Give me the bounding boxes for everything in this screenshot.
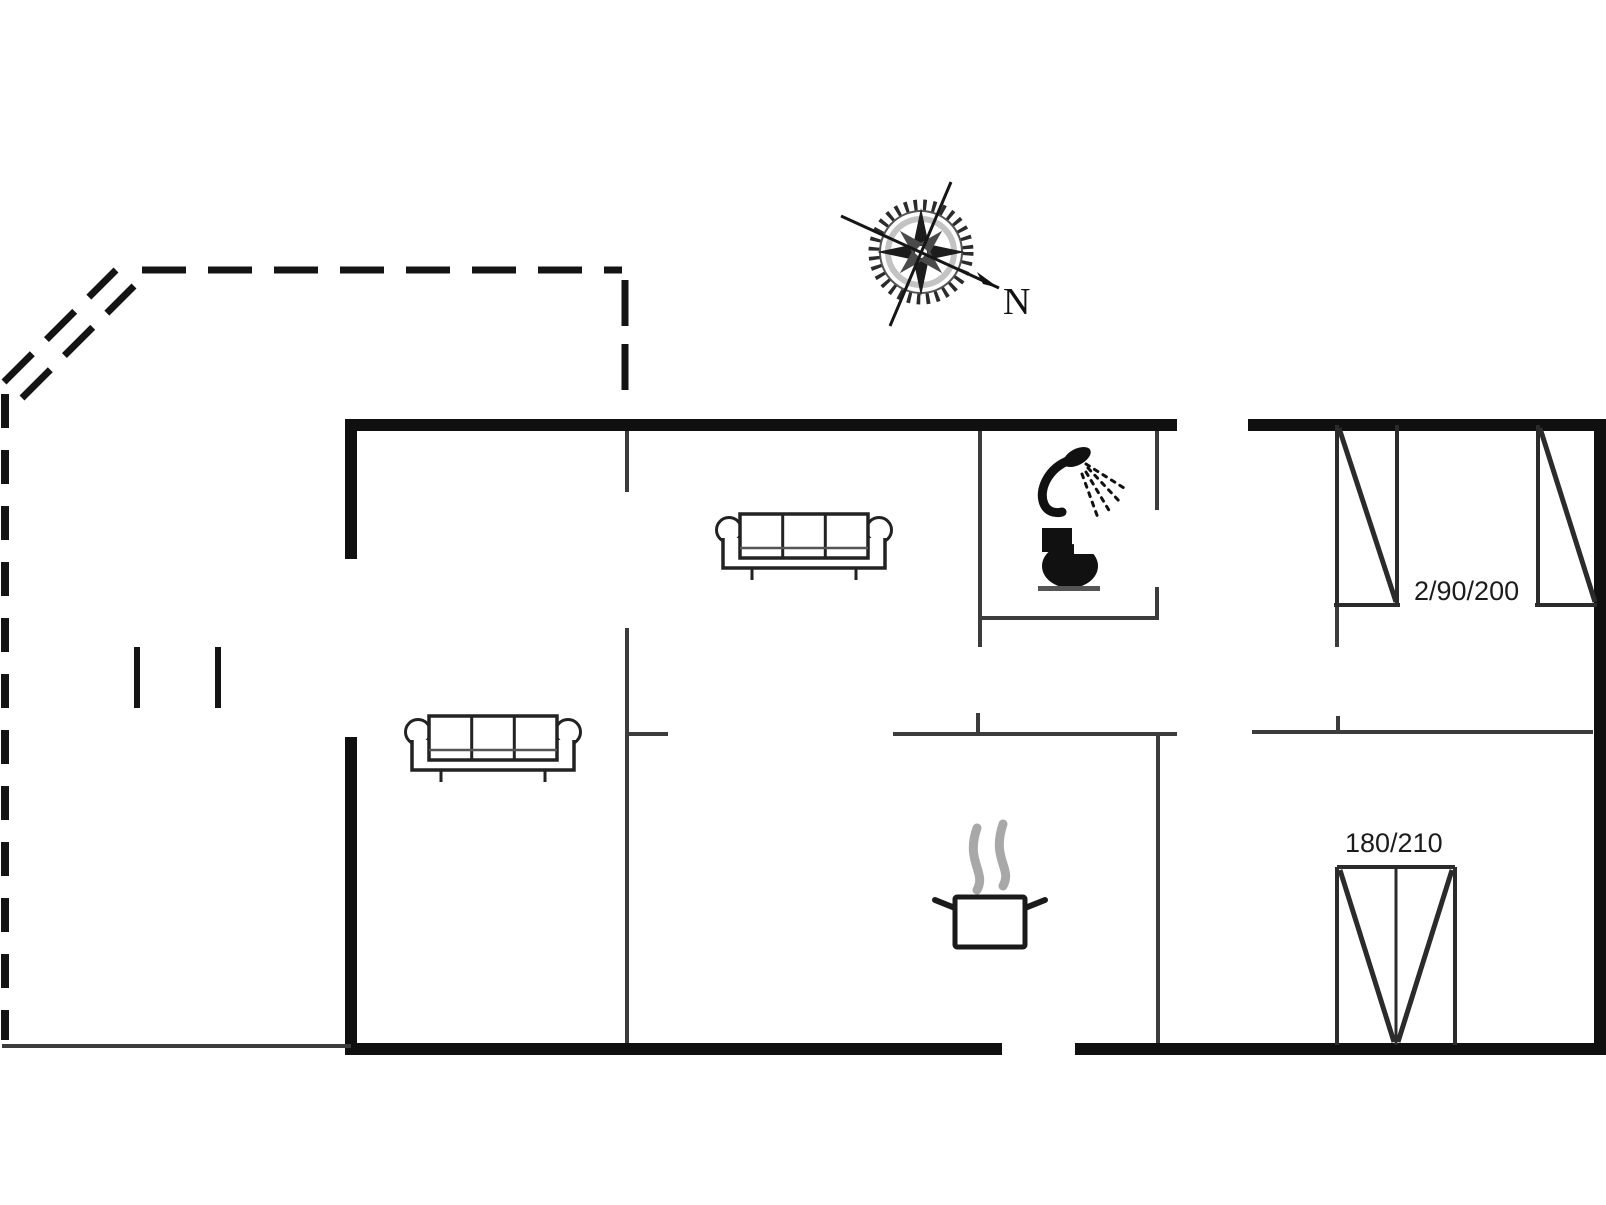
sofa-icon-1 [717, 514, 892, 580]
steam-wisp-1 [973, 828, 979, 890]
wall-left-lower-segment [345, 737, 357, 1055]
terrace-edge-diagonal-outer [4, 270, 116, 382]
floor-plan-drawing [0, 0, 1606, 1205]
single-bed-icon-2 [1535, 425, 1597, 605]
shower-icon [1042, 443, 1124, 518]
wall-bottom-left-segment [345, 1043, 1002, 1055]
steam-wisp-2 [999, 824, 1005, 886]
double-bed-size-label: 180/210 [1345, 830, 1443, 857]
cooking-pot-icon [935, 824, 1045, 947]
compass-rose-icon [841, 182, 999, 326]
wall-left-upper-segment [345, 419, 357, 559]
wall-bottom-right-segment [1075, 1043, 1606, 1055]
wall-top-right-segment [1248, 419, 1606, 431]
pot-handle-left [935, 900, 955, 908]
toilet-base [1038, 586, 1100, 591]
wall-top-left-segment [345, 419, 1177, 431]
terrace-edge-diagonal-inner [22, 286, 134, 398]
single-beds-size-label: 2/90/200 [1414, 578, 1519, 605]
toilet-icon [1038, 528, 1102, 591]
floor-plan: 2/90/200 180/210 N [0, 0, 1606, 1205]
compass-north-label: N [1003, 283, 1030, 321]
double-bed-icon [1337, 867, 1455, 1045]
pot-body [955, 897, 1025, 947]
wall-right-segment [1594, 419, 1606, 1055]
terrace-dashed-outline [2, 270, 625, 1046]
sofa-icon-2 [406, 716, 581, 782]
shower-spray [1082, 464, 1124, 518]
single-bed-icon-1 [1334, 425, 1400, 605]
pot-handle-right [1025, 900, 1045, 908]
